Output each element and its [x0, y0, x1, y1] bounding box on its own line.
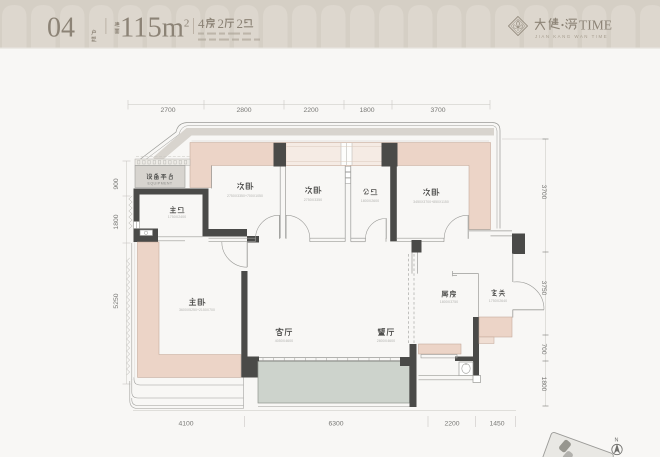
svg-text:900: 900 — [113, 178, 120, 190]
svg-text:TIME: TIME — [579, 18, 612, 33]
svg-text:EQUIPMENT: EQUIPMENT — [148, 182, 173, 186]
svg-text:4100: 4100 — [178, 421, 193, 428]
svg-text:3700: 3700 — [430, 107, 445, 114]
svg-text:5250: 5250 — [113, 293, 120, 308]
svg-text:4: 4 — [198, 16, 205, 31]
svg-text:1800: 1800 — [359, 107, 374, 114]
svg-text:3750: 3750 — [540, 281, 547, 296]
svg-text:6300: 6300 — [328, 421, 343, 428]
svg-text:04: 04 — [47, 13, 75, 44]
svg-text:1800: 1800 — [113, 214, 120, 229]
svg-text:2: 2 — [218, 16, 225, 31]
svg-text:2: 2 — [237, 16, 244, 31]
svg-text:2750X3350: 2750X3350 — [304, 198, 322, 202]
svg-text:2700: 2700 — [160, 107, 175, 114]
svg-text:1750X2640: 1750X2640 — [489, 299, 507, 303]
svg-text:3600X5250+2150X700: 3600X5250+2150X700 — [179, 308, 215, 312]
svg-text:3450X3700+850X1150: 3450X3700+850X1150 — [413, 200, 449, 204]
svg-text:700: 700 — [540, 343, 547, 354]
svg-text:2750X3350+700X1050: 2750X3350+700X1050 — [227, 194, 263, 198]
svg-text:3700: 3700 — [540, 185, 547, 200]
svg-text:115m2: 115m2 — [120, 13, 189, 44]
svg-text:2200: 2200 — [303, 107, 318, 114]
svg-text:N: N — [615, 438, 619, 444]
svg-text:1450: 1450 — [489, 421, 504, 428]
svg-text:JIAN KANG WAN TIME: JIAN KANG WAN TIME — [535, 34, 608, 39]
svg-text:1750X2400: 1750X2400 — [168, 215, 186, 219]
svg-text:4050X4600: 4050X4600 — [275, 339, 293, 343]
svg-text:1800X2600: 1800X2600 — [361, 199, 379, 203]
svg-text:2200: 2200 — [444, 421, 459, 428]
svg-text:2800: 2800 — [236, 107, 251, 114]
svg-text:1800X3750: 1800X3750 — [440, 300, 458, 304]
svg-text:1800: 1800 — [540, 377, 547, 392]
svg-text:2800X4600: 2800X4600 — [377, 339, 395, 343]
